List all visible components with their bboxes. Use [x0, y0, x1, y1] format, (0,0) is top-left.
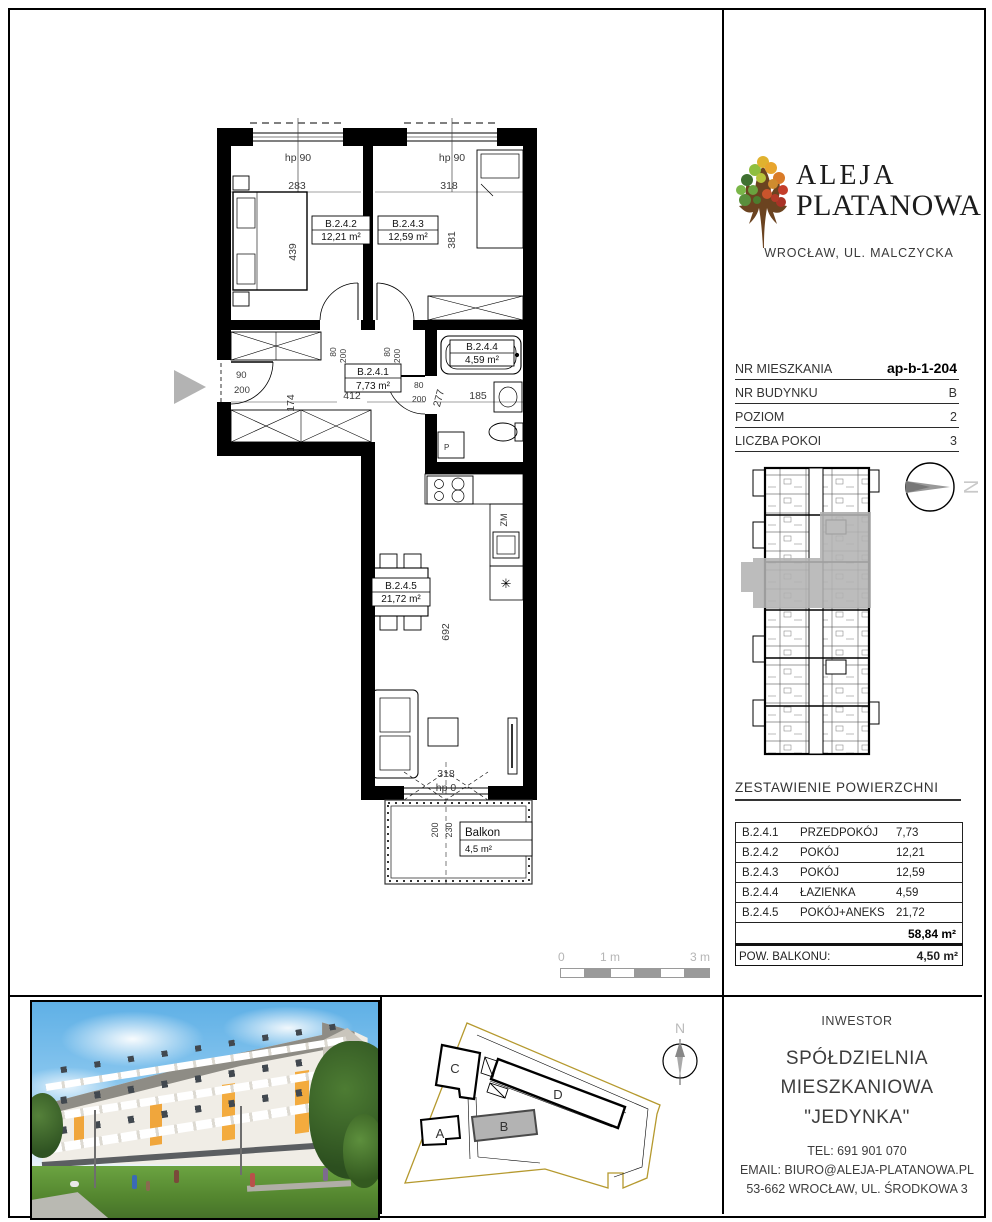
- areas-total: 58,84 m²: [908, 927, 956, 941]
- bed-single: [477, 150, 523, 248]
- area-name: POKÓJ: [800, 847, 839, 859]
- coffee-table: [428, 718, 458, 746]
- dim-692: 692: [440, 623, 452, 641]
- scale-0: 0: [558, 950, 565, 964]
- dim-277: 277: [431, 388, 447, 408]
- area-code: B.2.4.2: [742, 847, 778, 859]
- photo-person: [174, 1170, 179, 1183]
- area-value: 12,21: [896, 847, 925, 859]
- dim-door-80: 80: [382, 347, 392, 357]
- dishwasher-label: ZM: [499, 514, 509, 527]
- area-value: 12,59: [896, 867, 925, 879]
- dim-door-200: 200: [338, 349, 348, 363]
- room-area: 4,59 m²: [465, 355, 500, 366]
- room-label-b244: B.2.4.4 4,59 m²: [450, 340, 514, 366]
- dim-entry-90: 90: [236, 370, 247, 381]
- info-value: ap-b-1-204: [887, 360, 957, 376]
- area-code: B.2.4.4: [742, 887, 778, 899]
- logo-line1: ALEJA: [796, 162, 986, 191]
- room-label-b245: B.2.4.5 21,72 m²: [372, 578, 430, 606]
- areas-row: B.2.4.2 POKÓJ 12,21: [736, 843, 962, 863]
- bed-double: [233, 176, 307, 306]
- dim-412: 412: [343, 390, 361, 402]
- site-label-d: D: [553, 1087, 562, 1102]
- balcony-area-row: POW. BALKONU: 4,50 m²: [735, 943, 963, 966]
- photo-dog: [70, 1181, 79, 1187]
- info-value: 3: [950, 434, 957, 448]
- dim-hp90: hp 90: [285, 152, 311, 164]
- balcony-name: Balkon: [465, 827, 500, 839]
- photo-person: [250, 1173, 255, 1187]
- photo-lamp-post: [94, 1110, 96, 1188]
- room-area: 7,73 m²: [356, 381, 391, 392]
- site-label-c: C: [450, 1061, 459, 1076]
- areas-row: B.2.4.4 ŁAZIENKA 4,59: [736, 883, 962, 903]
- area-value: 21,72: [896, 907, 925, 919]
- areas-table: B.2.4.1 PRZEDPOKÓJ 7,73 B.2.4.2 POKÓJ 12…: [735, 822, 963, 945]
- dim-hp90: hp 90: [439, 152, 465, 164]
- scale-3m: 3 m: [690, 950, 710, 964]
- site-label-a: A: [436, 1126, 445, 1141]
- dim-door-200: 200: [392, 349, 402, 363]
- wardrobe-hall-top: [231, 332, 321, 360]
- toilet: [489, 423, 523, 441]
- floorplan-sheet: P ZM ✳: [0, 0, 992, 1222]
- area-name: ŁAZIENKA: [800, 887, 856, 899]
- room-label-b243: B.2.4.3 12,59 m²: [378, 216, 438, 244]
- dim-entry-200: 200: [234, 385, 250, 396]
- balcony-area-label: POW. BALKONU:: [739, 951, 830, 963]
- room-area: 12,21 m²: [321, 232, 361, 243]
- photo-person: [323, 1168, 328, 1181]
- stove: [427, 476, 473, 504]
- room-area: 12,59 m²: [388, 232, 428, 243]
- apartment-floor-plan: P ZM ✳: [150, 110, 725, 905]
- photo-person: [132, 1175, 137, 1189]
- info-label: NR BUDYNKU: [735, 386, 818, 400]
- info-value: 2: [950, 410, 957, 424]
- building-key-plan: N: [735, 455, 990, 777]
- entrance-arrow: [174, 370, 206, 404]
- balcony-area-value: 4,50 m²: [917, 949, 958, 963]
- wardrobe-hall-bottom: [231, 410, 371, 442]
- photo-tree: [343, 1114, 380, 1187]
- room-label-b241: B.2.4.1 7,73 m²: [345, 364, 401, 392]
- area-code: B.2.4.5: [742, 907, 778, 919]
- investor-tel: TEL: 691 901 070: [726, 1142, 988, 1161]
- area-value: 4,59: [896, 887, 918, 899]
- dim-230: 230: [444, 822, 454, 837]
- investor-email: EMAIL: BIURO@ALEJA-PLATANOWA.PL: [726, 1161, 988, 1180]
- washing-machine-label: P: [444, 443, 449, 452]
- areas-row: B.2.4.3 POKÓJ 12,59: [736, 863, 962, 883]
- areas-heading: ZESTAWIENIE POWIERZCHNI: [735, 780, 961, 801]
- balcony-label: Balkon 4,5 m²: [460, 822, 532, 856]
- info-label: LICZBA POKOI: [735, 434, 821, 448]
- dim-200: 200: [430, 822, 440, 837]
- dim-hp0: hp 0: [436, 782, 457, 794]
- logo-subtitle: WROCŁAW, UL. MALCZYCKA: [733, 246, 985, 260]
- dim-174: 174: [285, 394, 297, 412]
- washing-machine: P: [438, 432, 464, 458]
- compass-north-label: N: [959, 480, 981, 494]
- dim-318b: 318: [437, 768, 455, 780]
- investor-address: 53-662 WROCŁAW, UL. ŚRODKOWA 3: [726, 1180, 988, 1199]
- dim-door-80: 80: [328, 347, 338, 357]
- site-plan: C D A B N: [382, 997, 722, 1220]
- dim-door-80: 80: [414, 380, 424, 390]
- logo-title: ALEJA PLATANOWA: [796, 162, 986, 221]
- room-code: B.2.4.1: [357, 367, 389, 378]
- dim-door-200: 200: [412, 394, 426, 404]
- key-plan-compass: N: [906, 463, 981, 511]
- areas-row: B.2.4.5 POKÓJ+ANEKS 21,72: [736, 903, 962, 923]
- building-photo: [30, 1000, 380, 1220]
- area-name: PRZEDPOKÓJ: [800, 827, 878, 839]
- areas-row: B.2.4.1 PRZEDPOKÓJ 7,73: [736, 823, 962, 843]
- investor-name-1: SPÓŁDZIELNIA: [726, 1044, 988, 1073]
- dim-439: 439: [287, 243, 299, 261]
- info-row-nr-mieszkania: NR MIESZKANIA ap-b-1-204: [735, 356, 959, 380]
- photo-person: [146, 1181, 150, 1191]
- area-value: 7,73: [896, 827, 918, 839]
- tv-cabinet: [508, 718, 517, 774]
- door-room2: [320, 283, 358, 320]
- room-area: 21,72 m²: [381, 594, 421, 605]
- sofa: [372, 690, 418, 778]
- room-code: B.2.4.2: [325, 219, 357, 230]
- interior-walls: [231, 146, 537, 474]
- photo-lamp-post: [240, 1106, 242, 1175]
- site-label-b: B: [500, 1119, 509, 1134]
- info-row-liczba-pokoi: LICZBA POKOI 3: [735, 428, 959, 452]
- info-row-nr-budynku: NR BUDYNKU B: [735, 380, 959, 404]
- area-code: B.2.4.3: [742, 867, 778, 879]
- room-code: B.2.4.3: [392, 219, 424, 230]
- investor-heading: INWESTOR: [726, 1014, 988, 1028]
- dim-185: 185: [469, 390, 487, 402]
- room-label-b242: B.2.4.2 12,21 m²: [312, 216, 370, 244]
- area-code: B.2.4.1: [742, 827, 778, 839]
- area-name: POKÓJ+ANEKS: [800, 907, 885, 919]
- site-north-arrow: N: [663, 1020, 697, 1085]
- room-code: B.2.4.5: [385, 581, 417, 592]
- logo-line2: PLATANOWA: [796, 191, 986, 222]
- dim-381: 381: [446, 231, 458, 249]
- apartment-info-table: NR MIESZKANIA ap-b-1-204 NR BUDYNKU B PO…: [735, 356, 959, 452]
- washbasin: [494, 382, 522, 412]
- room-code: B.2.4.4: [466, 342, 498, 353]
- investor-block: INWESTOR SPÓŁDZIELNIA MIESZKANIOWA "JEDY…: [726, 1014, 988, 1199]
- investor-name-2: MIESZKANIOWA "JEDYNKA": [726, 1073, 988, 1132]
- site-north-label: N: [675, 1020, 685, 1036]
- scale-segments: [560, 968, 710, 978]
- fridge-icon: ✳: [501, 576, 512, 591]
- wardrobe-room3: [428, 296, 523, 320]
- balcony-area: 4,5 m²: [465, 844, 492, 855]
- area-name: POKÓJ: [800, 867, 839, 879]
- sink: [493, 532, 519, 558]
- dim-318: 318: [440, 180, 458, 192]
- info-label: POZIOM: [735, 410, 784, 424]
- door-room3: [377, 283, 414, 320]
- info-row-poziom: POZIOM 2: [735, 404, 959, 428]
- areas-total-row: 58,84 m²: [736, 923, 962, 944]
- dimensions: hp 90 hp 90 283 318 439 381 412 174 185 …: [234, 152, 487, 838]
- info-value: B: [949, 386, 957, 400]
- photo-orange-accent: [150, 1101, 162, 1147]
- info-label: NR MIESZKANIA: [735, 362, 832, 376]
- reference-lines: [231, 118, 523, 886]
- logo-tree-icon: [733, 150, 793, 254]
- scale-bar: 0 1 m 3 m: [558, 950, 718, 984]
- entry-door: [221, 356, 273, 406]
- scale-1m: 1 m: [600, 950, 620, 964]
- dim-283: 283: [288, 180, 306, 192]
